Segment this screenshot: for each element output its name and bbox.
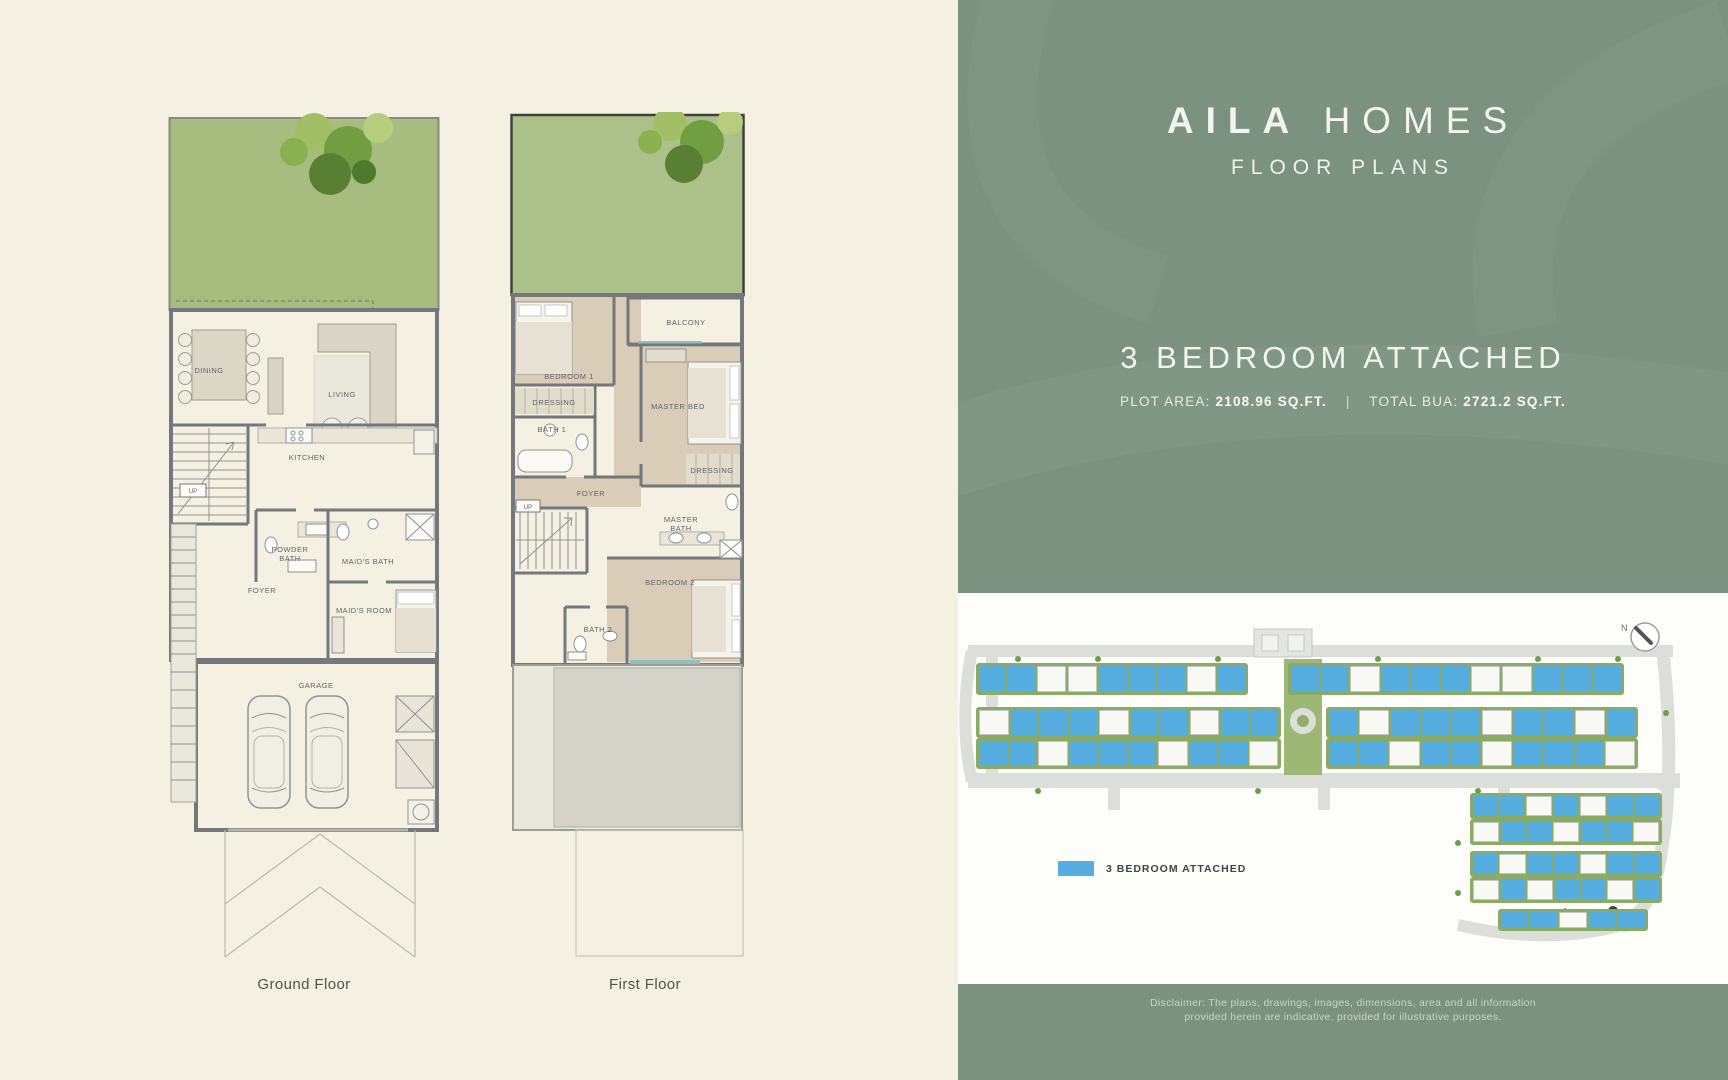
- unit-3br-attached: [1219, 741, 1247, 766]
- brochure-page: DINING LIVING KITCHEN POWDER BATH MAID'S…: [0, 0, 1728, 1080]
- unit-other: [1526, 796, 1552, 816]
- stairs-up-label: UP: [189, 489, 197, 495]
- disclaimer-line2: provided herein are indicative, provided…: [958, 1010, 1728, 1024]
- unit-3br-attached: [1009, 741, 1037, 766]
- unit-3br-attached: [1607, 822, 1631, 842]
- unit-other: [1038, 741, 1068, 766]
- svg-text:BATH: BATH: [670, 524, 691, 533]
- room-label-maids-bath: MAID'S BATH: [342, 557, 394, 566]
- unit-other: [1633, 822, 1659, 842]
- unit-3br-attached: [1329, 741, 1357, 766]
- unit-3br-attached: [1391, 710, 1419, 735]
- unit-3br-attached: [1575, 741, 1603, 766]
- disclaimer: Disclaimer: The plans, drawings, images,…: [958, 996, 1728, 1024]
- unit-3br-attached: [1329, 710, 1357, 735]
- unit-3br-attached: [1473, 796, 1497, 816]
- unit-3br-attached: [1514, 741, 1542, 766]
- unit-3br-attached: [1501, 880, 1525, 900]
- unit-3br-attached: [1635, 880, 1659, 900]
- unit-3br-attached: [1581, 822, 1605, 842]
- unit-specs: PLOT AREA: 2108.96 SQ.FT. | TOTAL BUA: 2…: [958, 394, 1728, 409]
- room-label-bedroom2: BEDROOM 2: [645, 578, 695, 587]
- unit-3br-attached: [1070, 741, 1098, 766]
- unit-3br-attached: [1554, 854, 1578, 874]
- unit-other: [1607, 880, 1633, 900]
- car-icon: [306, 696, 348, 808]
- unit-3br-attached: [1158, 666, 1185, 692]
- unit-other: [1158, 741, 1188, 766]
- room-label-balcony: BALCONY: [666, 318, 705, 327]
- unit-3br-attached: [1593, 666, 1621, 692]
- first-floor-drawing: BEDROOM 1 DRESSING BATH 1 BALCONY MASTER…: [510, 112, 745, 960]
- unit-3br-attached: [1131, 710, 1159, 735]
- compass-north-label: N: [1621, 623, 1628, 633]
- unit-other: [1502, 666, 1532, 692]
- unit-3br-attached: [1608, 854, 1632, 874]
- unit-3br-attached: [1218, 666, 1245, 692]
- stairs-up-label: UP: [524, 505, 532, 511]
- unit-3br-attached: [1422, 710, 1450, 735]
- room-label-living: LIVING: [328, 390, 356, 399]
- unit-3br-attached: [1291, 666, 1319, 692]
- unit-3br-attached: [1635, 796, 1659, 816]
- unit-3br-attached: [1618, 912, 1645, 928]
- legend-swatch: [1058, 861, 1094, 876]
- unit-3br-attached: [1452, 710, 1480, 735]
- unit-3br-attached: [1452, 741, 1480, 766]
- unit-3br-attached: [1499, 796, 1523, 816]
- unit-other: [1068, 666, 1097, 692]
- unit-3br-attached: [1008, 666, 1035, 692]
- room-label-bedroom1: BEDROOM 1: [544, 372, 594, 381]
- room-label-powder-bath: POWDER: [272, 545, 309, 554]
- unit-3br-attached: [1190, 741, 1218, 766]
- unit-3br-attached: [1129, 666, 1156, 692]
- unit-other: [1473, 822, 1499, 842]
- unit-3br-attached: [1501, 912, 1528, 928]
- unit-other: [1249, 741, 1279, 766]
- unit-3br-attached: [1555, 880, 1579, 900]
- unit-3br-attached: [1221, 710, 1249, 735]
- room-label-foyer: FOYER: [248, 586, 276, 595]
- unit-3br-attached: [1412, 666, 1440, 692]
- unit-other: [1553, 822, 1579, 842]
- unit-3br-attached: [1501, 822, 1525, 842]
- townhouse-row: [1498, 909, 1648, 931]
- unit-3br-attached: [1160, 710, 1188, 735]
- unit-other: [979, 710, 1009, 735]
- legend-label: 3 BEDROOM ATTACHED: [1106, 863, 1246, 875]
- unit-3br-attached: [1581, 880, 1605, 900]
- car-icon: [248, 696, 290, 808]
- unit-3br-attached: [1544, 710, 1572, 735]
- unit-3br-attached: [1099, 666, 1126, 692]
- unit-other: [1190, 710, 1220, 735]
- townhouse-row: [1326, 707, 1638, 738]
- townhouse-row: [1470, 851, 1662, 877]
- unit-other: [1482, 710, 1512, 735]
- room-label-dressing2: DRESSING: [690, 466, 733, 475]
- unit-3br-attached: [1514, 710, 1542, 735]
- room-label-foyer: FOYER: [577, 489, 605, 498]
- unit-3br-attached: [1554, 796, 1578, 816]
- unit-other: [1499, 854, 1525, 874]
- unit-3br-attached: [1099, 741, 1127, 766]
- unit-other: [1037, 666, 1066, 692]
- driveway: [576, 830, 743, 956]
- plot-area-value: 2108.96 SQ.FT.: [1216, 394, 1327, 409]
- unit-3br-attached: [1382, 666, 1410, 692]
- unit-3br-attached: [1544, 741, 1572, 766]
- room-label-master-bed: MASTER BED: [651, 402, 705, 411]
- brand-header: AILA HOMES FLOOR PLANS: [958, 100, 1728, 180]
- unit-3br-attached: [979, 666, 1006, 692]
- unit-other: [1482, 741, 1512, 766]
- room-label-garage: GARAGE: [298, 681, 333, 690]
- unit-other: [1559, 912, 1588, 928]
- unit-3br-attached: [1040, 710, 1068, 735]
- room-label-maids-room: MAID'S ROOM: [336, 606, 392, 615]
- townhouse-row: [1470, 819, 1662, 845]
- unit-3br-attached: [1321, 666, 1349, 692]
- bua-label: TOTAL BUA:: [1369, 394, 1458, 409]
- brand-subtitle: FLOOR PLANS: [958, 156, 1728, 180]
- unit-3br-attached: [1530, 912, 1557, 928]
- unit-3br-attached: [1534, 666, 1562, 692]
- unit-other: [1187, 666, 1216, 692]
- townhouse-row: [1470, 793, 1662, 819]
- unit-other: [1350, 666, 1380, 692]
- unit-header: 3 BEDROOM ATTACHED PLOT AREA: 2108.96 SQ…: [958, 340, 1728, 409]
- unit-3br-attached: [1589, 912, 1616, 928]
- unit-other: [1359, 710, 1389, 735]
- driveway: [225, 830, 415, 957]
- unit-3br-attached: [1359, 741, 1387, 766]
- unit-3br-attached: [1070, 710, 1098, 735]
- info-pane: AILA HOMES FLOOR PLANS 3 BEDROOM ATTACHE…: [958, 0, 1728, 1080]
- unit-3br-attached: [1473, 854, 1497, 874]
- room-label-dining: DINING: [194, 366, 223, 375]
- entry-plaza: [1254, 629, 1312, 657]
- disclaimer-line1: Disclaimer: The plans, drawings, images,…: [958, 996, 1728, 1010]
- unit-3br-attached: [1011, 710, 1039, 735]
- townhouse-row: [976, 663, 1248, 695]
- room-label-master-bath: MASTER: [664, 515, 698, 524]
- unit-3br-attached: [1528, 854, 1552, 874]
- unit-3br-attached: [1422, 741, 1450, 766]
- townhouse-row: [976, 738, 1281, 769]
- room-label-dressing1: DRESSING: [532, 398, 575, 407]
- svg-text:BATH: BATH: [279, 554, 300, 563]
- room-label-bath2: BATH 2: [584, 625, 613, 634]
- unit-3br-attached: [1564, 666, 1592, 692]
- townhouse-row: [976, 707, 1281, 738]
- unit-other: [1471, 666, 1501, 692]
- unit-3br-attached: [1635, 854, 1659, 874]
- townhouse-row: [1326, 738, 1638, 769]
- unit-3br-attached: [1441, 666, 1469, 692]
- first-floor-caption: First Floor: [510, 976, 780, 993]
- master-plan-panel: N 3 BEDROOM ATTACHED: [958, 593, 1728, 984]
- floor-plans-pane: DINING LIVING KITCHEN POWDER BATH MAID'S…: [0, 0, 958, 1080]
- spec-divider: |: [1346, 394, 1351, 409]
- first-floor-plan: BEDROOM 1 DRESSING BATH 1 BALCONY MASTER…: [510, 112, 745, 960]
- unit-3br-attached: [1527, 822, 1551, 842]
- ground-floor-plan: DINING LIVING KITCHEN POWDER BATH MAID'S…: [168, 112, 440, 960]
- unit-other: [1099, 710, 1129, 735]
- ground-floor-caption: Ground Floor: [168, 976, 440, 993]
- unit-other: [1580, 796, 1606, 816]
- brand-title: AILA HOMES: [958, 100, 1728, 142]
- unit-3br-attached: [1608, 796, 1632, 816]
- townhouse-row: [1470, 877, 1662, 903]
- unit-other: [1389, 741, 1419, 766]
- unit-title: 3 BEDROOM ATTACHED: [958, 340, 1728, 376]
- unit-3br-attached: [979, 741, 1007, 766]
- unit-3br-attached: [1251, 710, 1279, 735]
- unit-3br-attached: [1129, 741, 1157, 766]
- unit-other: [1527, 880, 1553, 900]
- ground-floor-drawing: DINING LIVING KITCHEN POWDER BATH MAID'S…: [168, 112, 440, 960]
- unit-3br-attached: [1607, 710, 1635, 735]
- unit-other: [1575, 710, 1605, 735]
- townhouse-row: [1288, 663, 1624, 695]
- unit-other: [1605, 741, 1635, 766]
- unit-legend: 3 BEDROOM ATTACHED: [1058, 861, 1246, 876]
- bua-value: 2721.2 SQ.FT.: [1463, 394, 1566, 409]
- room-label-kitchen: KITCHEN: [289, 453, 325, 462]
- unit-other: [1473, 880, 1499, 900]
- room-label-bath1: BATH 1: [538, 425, 567, 434]
- plot-area-label: PLOT AREA:: [1120, 394, 1211, 409]
- unit-other: [1580, 854, 1606, 874]
